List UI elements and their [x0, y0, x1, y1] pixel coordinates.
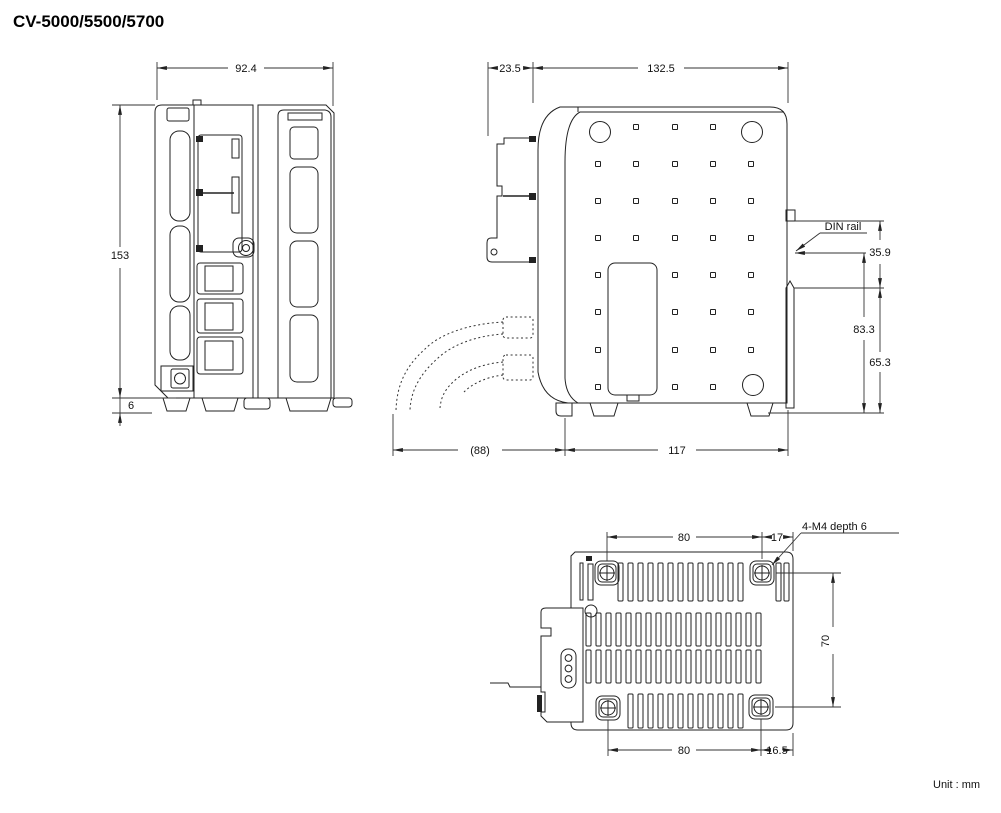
vent-slot	[718, 563, 723, 601]
grid-hole	[749, 236, 754, 241]
dim-din-span: 83.3	[853, 324, 874, 336]
bracket-mount-tab	[529, 257, 536, 263]
thumbscrew	[239, 241, 254, 256]
front-right-module-outline	[258, 105, 334, 398]
bottom-front-protrusion	[541, 608, 583, 722]
dim-front-foot: 6	[128, 400, 134, 412]
dimension-drawing-page: CV-5000/5500/5700	[0, 0, 1001, 813]
connector-tab	[196, 189, 203, 196]
dim-din-top: 35.9	[869, 247, 890, 259]
grid-hole	[673, 385, 678, 390]
vent-slot	[686, 613, 691, 646]
vent-slot	[658, 694, 663, 728]
vent-slot	[688, 694, 693, 728]
grid-hole	[596, 199, 601, 204]
dim-cable-clearance: (88)	[470, 445, 490, 457]
vent-slot	[646, 613, 651, 646]
vent-slot	[678, 694, 683, 728]
front-right-top-bar	[288, 113, 322, 120]
bottom-mark	[586, 556, 592, 561]
grid-hole	[711, 273, 716, 278]
side-connector-bracket	[487, 138, 533, 262]
io-connector-inner	[205, 303, 233, 330]
vent-slot	[626, 613, 631, 646]
grid-hole	[673, 310, 678, 315]
grid-hole	[596, 236, 601, 241]
front-vent-slot	[170, 306, 190, 360]
dim-rear-offset-bottom: 16.5	[766, 745, 787, 757]
io-connector	[197, 263, 243, 294]
front-top-tab	[193, 100, 201, 105]
front-foot	[163, 398, 190, 411]
vent-slot	[658, 563, 663, 601]
grid-hole	[749, 348, 754, 353]
vent-slot	[580, 563, 583, 600]
bracket-mount-tab	[529, 193, 536, 200]
grid-hole	[596, 385, 601, 390]
vent-slot	[638, 694, 643, 728]
front-foot	[286, 398, 331, 411]
grid-hole	[673, 199, 678, 204]
connector-latch	[232, 139, 239, 158]
grid-hole	[634, 125, 639, 130]
side-view: 23.5 132.5 DIN rail 35.9 83.3 65.3	[393, 62, 891, 457]
vent-slot	[668, 563, 673, 601]
connector-latch	[232, 177, 239, 213]
dimension-drawing: CV-5000/5500/5700	[0, 0, 1001, 813]
grid-hole	[711, 385, 716, 390]
grid-hole	[749, 310, 754, 315]
vent-slot	[586, 650, 591, 683]
vent-slot	[596, 650, 601, 683]
front-vent-slot	[170, 226, 190, 302]
front-vent-slot	[290, 241, 318, 307]
dim-screw-pitch-top: 80	[678, 532, 690, 544]
io-connector-inner	[205, 341, 233, 370]
vent-slot	[696, 650, 701, 683]
vent-slot	[636, 613, 641, 646]
mounting-screw	[595, 561, 619, 585]
vent-slot	[628, 694, 633, 728]
dim-rear-offset-top: 17	[771, 532, 783, 544]
vent-slot	[596, 613, 601, 646]
grid-hole	[673, 162, 678, 167]
dim-screw-pitch-vertical: 70	[820, 635, 832, 647]
vent-slot	[688, 563, 693, 601]
din-claw	[537, 695, 542, 712]
grid-hole	[749, 199, 754, 204]
screw-note-label: 4-M4 depth 6	[802, 521, 867, 533]
side-view-dimensions: 23.5 132.5 DIN rail 35.9 83.3 65.3	[393, 62, 891, 457]
vent-slot	[716, 650, 721, 683]
vent-slot	[696, 613, 701, 646]
vent-slot	[706, 650, 711, 683]
vent-slot	[776, 563, 781, 601]
bottom-view: 80 17 4-M4 depth 6 70 80 16.5	[490, 521, 899, 757]
dim-lower-span: 65.3	[869, 357, 890, 369]
side-large-hole	[742, 122, 763, 143]
grid-hole	[711, 348, 716, 353]
power-terminal-inner	[171, 369, 189, 388]
vent-slot	[706, 613, 711, 646]
grid-hole	[596, 348, 601, 353]
bracket-mount-tab	[529, 136, 536, 142]
vent-slot	[676, 613, 681, 646]
grid-hole	[711, 310, 716, 315]
grid-hole	[634, 236, 639, 241]
vent-slot	[638, 563, 643, 601]
vent-slot	[718, 694, 723, 728]
side-foot	[747, 403, 773, 416]
vent-slot	[606, 650, 611, 683]
side-cutout-tab	[627, 395, 639, 401]
vent-slot	[666, 613, 671, 646]
front-foot	[202, 398, 238, 411]
front-right-panel	[278, 110, 331, 398]
unit-note: Unit : mm	[933, 779, 980, 791]
vent-slot	[686, 650, 691, 683]
front-vent-slot	[170, 131, 190, 221]
vent-slot	[716, 613, 721, 646]
camera-cable-dashed	[396, 317, 533, 410]
grid-hole	[749, 162, 754, 167]
front-view: 92.4 153 6	[111, 62, 352, 426]
vent-slot	[784, 563, 789, 601]
bottom-vent-grid	[586, 563, 789, 728]
io-connector	[197, 299, 243, 333]
vent-slot	[626, 650, 631, 683]
vent-slot	[678, 563, 683, 601]
front-vent-slot	[290, 167, 318, 233]
grid-hole	[596, 162, 601, 167]
side-large-hole	[590, 122, 611, 143]
grid-hole	[634, 162, 639, 167]
side-hole-grid	[596, 125, 754, 390]
cable-wire	[490, 683, 541, 687]
vent-slot	[616, 613, 621, 646]
grid-hole	[673, 236, 678, 241]
thumbscrew-center	[243, 245, 250, 252]
grid-hole	[596, 310, 601, 315]
front-indicator-window	[167, 108, 189, 121]
vent-slot	[616, 650, 621, 683]
front-foot	[333, 398, 352, 407]
vent-slot	[736, 650, 741, 683]
dim-side-depth: 132.5	[647, 63, 675, 75]
vent-slot	[676, 650, 681, 683]
vent-slot	[656, 650, 661, 683]
grid-hole	[711, 236, 716, 241]
mounting-screw	[750, 561, 774, 585]
dim-front-height: 153	[111, 250, 129, 262]
vent-slot	[728, 694, 733, 728]
side-large-hole	[743, 375, 764, 396]
grid-hole	[673, 125, 678, 130]
vent-slot	[648, 563, 653, 601]
connector-tab	[196, 245, 203, 252]
bottom-plate-outline	[571, 552, 793, 730]
vent-slot	[756, 613, 761, 646]
vent-slot	[728, 563, 733, 601]
vent-slot	[756, 650, 761, 683]
side-bezel-line	[565, 112, 784, 403]
page-title: CV-5000/5500/5700	[13, 12, 164, 31]
vent-slot	[738, 563, 743, 601]
bracket-screw-hole	[491, 249, 497, 255]
front-view-dimensions: 92.4 153 6	[111, 62, 333, 426]
din-rail-label: DIN rail	[825, 221, 862, 233]
grid-hole	[711, 199, 716, 204]
vent-slot	[736, 613, 741, 646]
grid-hole	[673, 273, 678, 278]
vent-slot	[738, 694, 743, 728]
vent-slot	[588, 564, 593, 600]
dim-screw-pitch-bottom: 80	[678, 745, 690, 757]
side-body-outline	[538, 107, 787, 403]
vent-slot	[636, 650, 641, 683]
side-foot	[590, 403, 618, 416]
grid-hole	[749, 273, 754, 278]
side-foot	[556, 403, 572, 416]
vent-slot	[698, 563, 703, 601]
grid-hole	[634, 199, 639, 204]
vent-slot	[726, 650, 731, 683]
dim-side-protrusion: 23.5	[499, 63, 520, 75]
power-terminal-screw	[175, 373, 186, 384]
vent-slot	[628, 563, 633, 601]
dim-front-width: 92.4	[235, 63, 256, 75]
connector-tab	[196, 136, 203, 142]
vent-slot	[586, 613, 591, 646]
mounting-screw	[596, 696, 620, 720]
mounting-screw	[749, 695, 773, 719]
vent-slot	[746, 613, 751, 646]
front-vent-slot	[290, 127, 318, 159]
side-panel-cutout	[608, 263, 657, 395]
io-connector	[197, 337, 243, 374]
front-vent-slot	[290, 315, 318, 382]
mounting-screws	[595, 561, 774, 720]
grid-hole	[673, 348, 678, 353]
vent-slot	[646, 650, 651, 683]
grid-hole	[596, 273, 601, 278]
io-connector-inner	[205, 266, 233, 291]
dim-base-depth: 117	[668, 445, 686, 457]
vent-slot	[668, 694, 673, 728]
grid-hole	[711, 162, 716, 167]
vent-slot	[698, 694, 703, 728]
vent-slot	[606, 613, 611, 646]
vent-slot	[666, 650, 671, 683]
front-foot	[244, 398, 270, 409]
vent-slot	[746, 650, 751, 683]
vent-slot	[656, 613, 661, 646]
vent-slot	[708, 563, 713, 601]
vent-slot	[708, 694, 713, 728]
vent-slot	[726, 613, 731, 646]
grid-hole	[711, 125, 716, 130]
vent-slot	[648, 694, 653, 728]
